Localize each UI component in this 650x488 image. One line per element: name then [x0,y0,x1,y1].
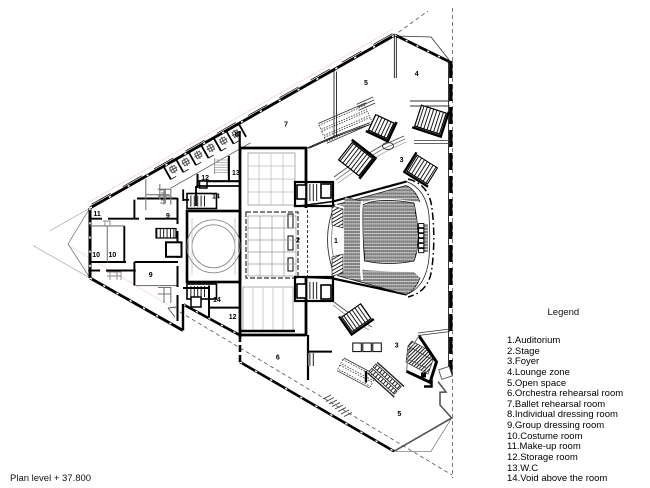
svg-text:12: 12 [201,175,209,182]
svg-text:13: 13 [232,170,240,177]
svg-text:14: 14 [213,297,221,304]
svg-text:5: 5 [364,80,368,87]
svg-text:8: 8 [235,131,239,138]
svg-text:3: 3 [395,342,399,349]
svg-text:10: 10 [109,252,117,259]
svg-text:6: 6 [276,355,280,362]
svg-text:3: 3 [400,157,404,164]
svg-text:7: 7 [284,121,288,128]
svg-text:5: 5 [397,411,401,418]
svg-text:1: 1 [334,238,338,245]
svg-text:9: 9 [149,272,153,279]
svg-text:2: 2 [296,237,300,244]
svg-text:11: 11 [93,211,101,218]
svg-text:4: 4 [415,71,419,78]
svg-text:10: 10 [92,252,100,259]
svg-text:14: 14 [212,193,220,200]
svg-text:12: 12 [229,314,237,321]
svg-text:9: 9 [166,213,170,220]
